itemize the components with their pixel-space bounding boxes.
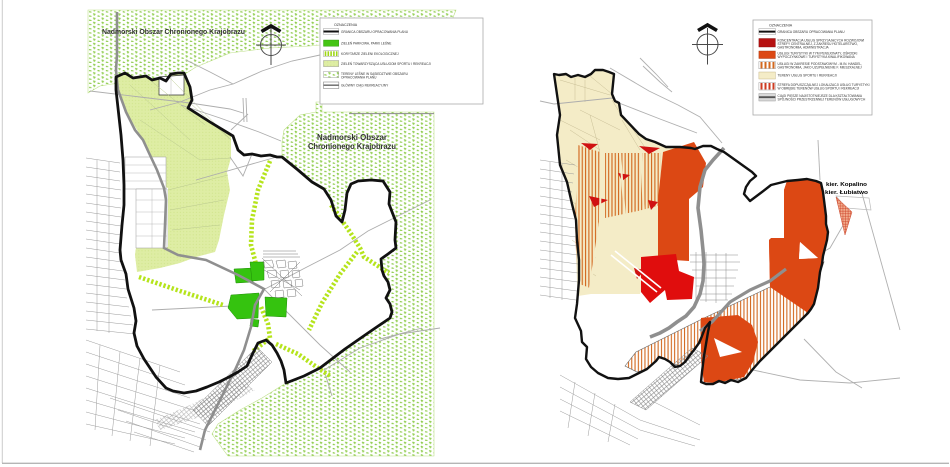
svg-text:Nadmorski Obszar: Nadmorski Obszar: [317, 133, 387, 142]
svg-text:OZNACZENIA: OZNACZENIA: [769, 24, 793, 28]
svg-text:kier. Kopalino: kier. Kopalino: [826, 182, 867, 188]
svg-text:ZIELEŃ TOWARZYSZĄCA USŁUGOM SP: ZIELEŃ TOWARZYSZĄCA USŁUGOM SPORTU I REK…: [341, 62, 431, 66]
svg-text:Nadmorski Obszar Chronionego K: Nadmorski Obszar Chronionego Krajobrazu: [102, 27, 245, 36]
svg-text:OPRACOWANIA PLANU: OPRACOWANIA PLANU: [341, 76, 377, 80]
svg-text:GASTRONOMIA, JAKO UZUPEŁNIENIE: GASTRONOMIA, JAKO UZUPEŁNIENIE F. MIESZK…: [778, 66, 863, 70]
svg-text:GŁÓWNY CIĄG REKREACYJNY: GŁÓWNY CIĄG REKREACYJNY: [341, 83, 389, 88]
svg-text:SPÓJNOŚCI PRZESTRZENNEJ TERENÓ: SPÓJNOŚCI PRZESTRZENNEJ TERENÓW USŁUGOWY…: [778, 97, 866, 102]
svg-text:GASTRONOMIA, ADMINISTRACJA: GASTRONOMIA, ADMINISTRACJA: [778, 46, 830, 50]
svg-text:Chronionego Krajobrazu: Chronionego Krajobrazu: [308, 142, 396, 151]
svg-text:GRANICA OBSZARU OPRACOWANIA PL: GRANICA OBSZARU OPRACOWANIA PLANU: [778, 30, 846, 34]
svg-text:WYPOCZYNKOWE I TURYSTYKA KWALI: WYPOCZYNKOWE I TURYSTYKA KWALIFIKOWANA: [778, 55, 856, 59]
svg-text:GRANICA OBSZARU OPRACOWANIA PL: GRANICA OBSZARU OPRACOWANIA PLANU: [341, 30, 409, 34]
svg-text:W OBRĘBIE TERENÓW USŁUG SPORTU: W OBRĘBIE TERENÓW USŁUG SPORTU I REKREAC…: [778, 86, 860, 91]
svg-text:ZIELEŃ PARKOWA, PARKI LEŚNE: ZIELEŃ PARKOWA, PARKI LEŚNE: [341, 41, 391, 46]
svg-text:KORYTARZE ZIELENI EKOLOGICZNEJ: KORYTARZE ZIELENI EKOLOGICZNEJ: [341, 52, 399, 56]
svg-text:TERENY USŁUG SPORTU I REKREACJ: TERENY USŁUG SPORTU I REKREACJI: [778, 74, 838, 78]
svg-text:kier. Łubiatwo: kier. Łubiatwo: [825, 190, 869, 196]
svg-text:OZNACZENIA: OZNACZENIA: [334, 23, 358, 27]
